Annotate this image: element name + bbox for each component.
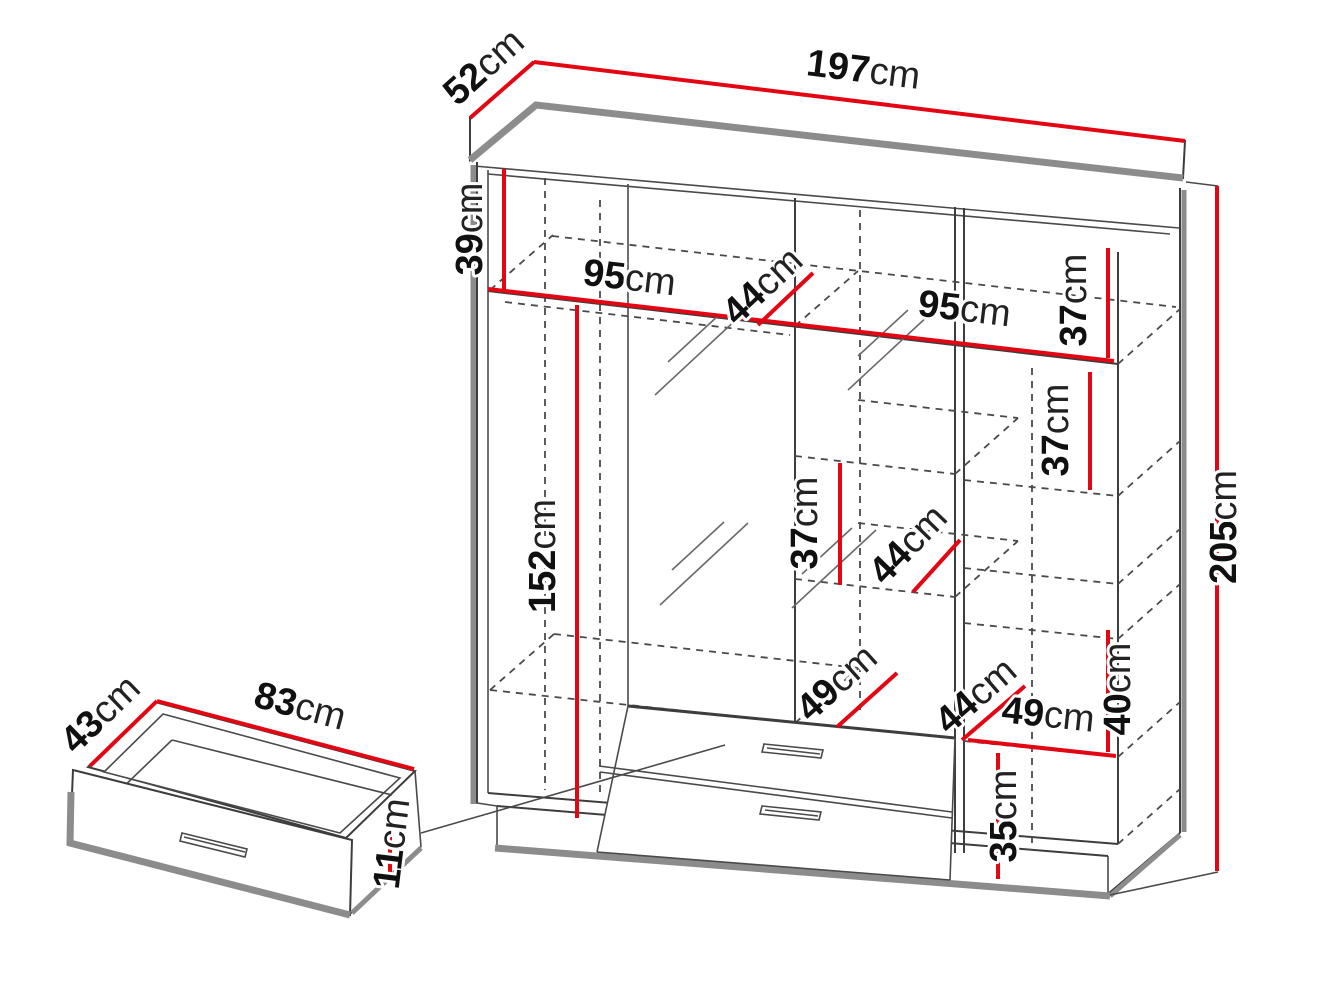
diagram-stage: 52cm 197cm 205cm 39cm 95cm 44cm 95cm 37c… [0, 0, 1318, 988]
wardrobe-drawers [597, 706, 955, 880]
dim-label-right-shelf-gap-1: 37cm [1053, 254, 1095, 347]
dim-line-49-bottom [968, 740, 1116, 756]
dim-label-right-section-width: 95cm [916, 283, 1013, 336]
dim-label-right-lower-gap: 40cm [1097, 643, 1139, 736]
dim-label-height: 205cm [1203, 470, 1245, 584]
dim-label-bottom-right-height: 35cm [983, 770, 1025, 863]
dim-label-right-shelf-gap-2: 37cm [1035, 384, 1077, 477]
dim-label-hanging-height: 152cm [522, 499, 564, 613]
dim-label-middle-shelf-depth: 44cm [861, 497, 956, 593]
dim-line-95-44-95 [488, 289, 1114, 361]
dim-label-bottom-right-width: 49cm [1000, 689, 1097, 740]
dim-label-top-width: 197cm [804, 42, 922, 98]
dim-label-middle-shelf-gap: 37cm [784, 477, 826, 570]
wardrobe-drawing [470, 62, 1218, 896]
wardrobe-dimension-diagram: 52cm 197cm 205cm 39cm 95cm 44cm 95cm 37c… [0, 0, 1318, 988]
top-shelf [488, 291, 1118, 364]
dim-label-bottom-shelf-depth: 49cm [788, 636, 885, 729]
dim-label-left-section-width: 95cm [581, 252, 678, 305]
dim-label-top-shelf-drop: 39cm [449, 183, 491, 276]
